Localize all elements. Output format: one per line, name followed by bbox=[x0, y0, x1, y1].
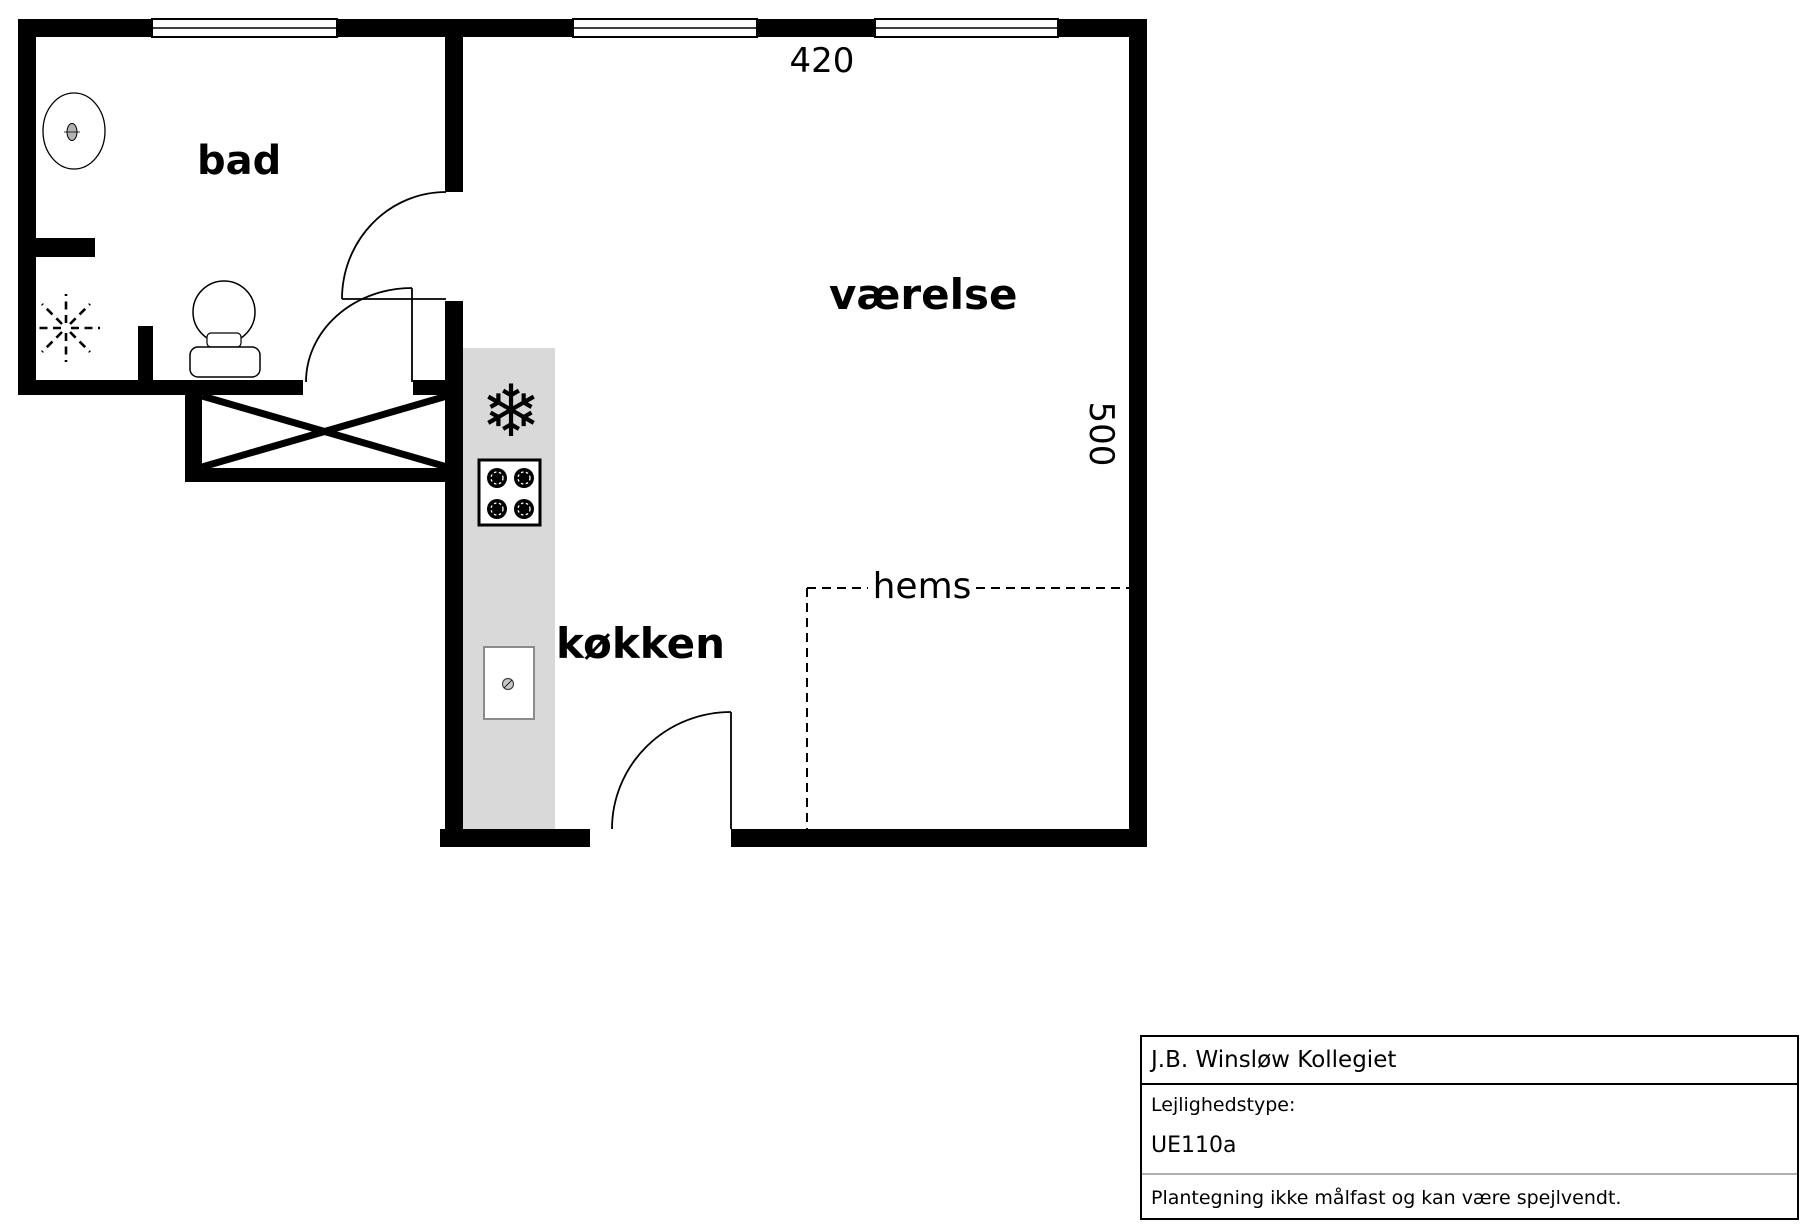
wall-shower-stub bbox=[36, 238, 95, 257]
door-arc-entry bbox=[612, 712, 731, 829]
window-room-left bbox=[573, 19, 757, 37]
wall-bathroom-bottom-1 bbox=[18, 380, 303, 395]
loft-dashed-outline bbox=[807, 588, 1129, 829]
floorplan-page: ❄ bad værelse køkken hems 420 500 J.B. W… bbox=[0, 0, 1808, 1228]
room-label-room: værelse bbox=[829, 274, 1017, 316]
title-block: J.B. Winsløw Kollegiet Lejlighedstype: U… bbox=[1140, 1035, 1799, 1220]
room-label-loft: hems bbox=[873, 569, 972, 605]
wall-top-1 bbox=[18, 19, 152, 37]
apartment-type-label: Lejlighedstype: bbox=[1151, 1085, 1797, 1116]
toilet-icon bbox=[190, 281, 260, 377]
stove-icon bbox=[479, 460, 540, 525]
title-block-type-row: Lejlighedstype: UE110a bbox=[1142, 1085, 1797, 1175]
title-block-disclaimer: Plantegning ikke målfast og kan være spe… bbox=[1142, 1175, 1797, 1220]
door-arc-bathroom bbox=[306, 288, 412, 382]
walls bbox=[18, 19, 1147, 847]
wall-toilet-stub bbox=[138, 326, 153, 395]
apartment-type-value: UE110a bbox=[1151, 1116, 1797, 1158]
room-label-bathroom: bad bbox=[197, 141, 281, 181]
wall-bottom-2 bbox=[731, 829, 1147, 847]
room-label-kitchen: køkken bbox=[556, 623, 725, 665]
shaft-cross-icon bbox=[202, 396, 447, 467]
sink-icon bbox=[484, 647, 534, 719]
floor-plan-drawing: ❄ bbox=[0, 0, 1180, 870]
freezer-icon: ❄ bbox=[481, 369, 541, 453]
title-block-project: J.B. Winsløw Kollegiet bbox=[1142, 1037, 1797, 1085]
wall-top-3 bbox=[757, 19, 875, 37]
washbasin-icon bbox=[43, 93, 105, 169]
wall-divider-upper bbox=[445, 19, 463, 192]
shower-drain-icon bbox=[32, 294, 100, 362]
dimension-depth: 500 bbox=[1084, 402, 1118, 467]
windows bbox=[152, 19, 1058, 37]
window-bathroom bbox=[152, 19, 337, 37]
wall-bathroom-bottom-2 bbox=[413, 380, 448, 395]
door-arc-bathroom-inner bbox=[342, 192, 446, 299]
wall-right bbox=[1129, 19, 1147, 847]
window-room-right bbox=[875, 19, 1058, 37]
wall-left bbox=[18, 19, 36, 395]
wall-shaft-bottom bbox=[185, 468, 463, 482]
dimension-width: 420 bbox=[790, 44, 855, 78]
